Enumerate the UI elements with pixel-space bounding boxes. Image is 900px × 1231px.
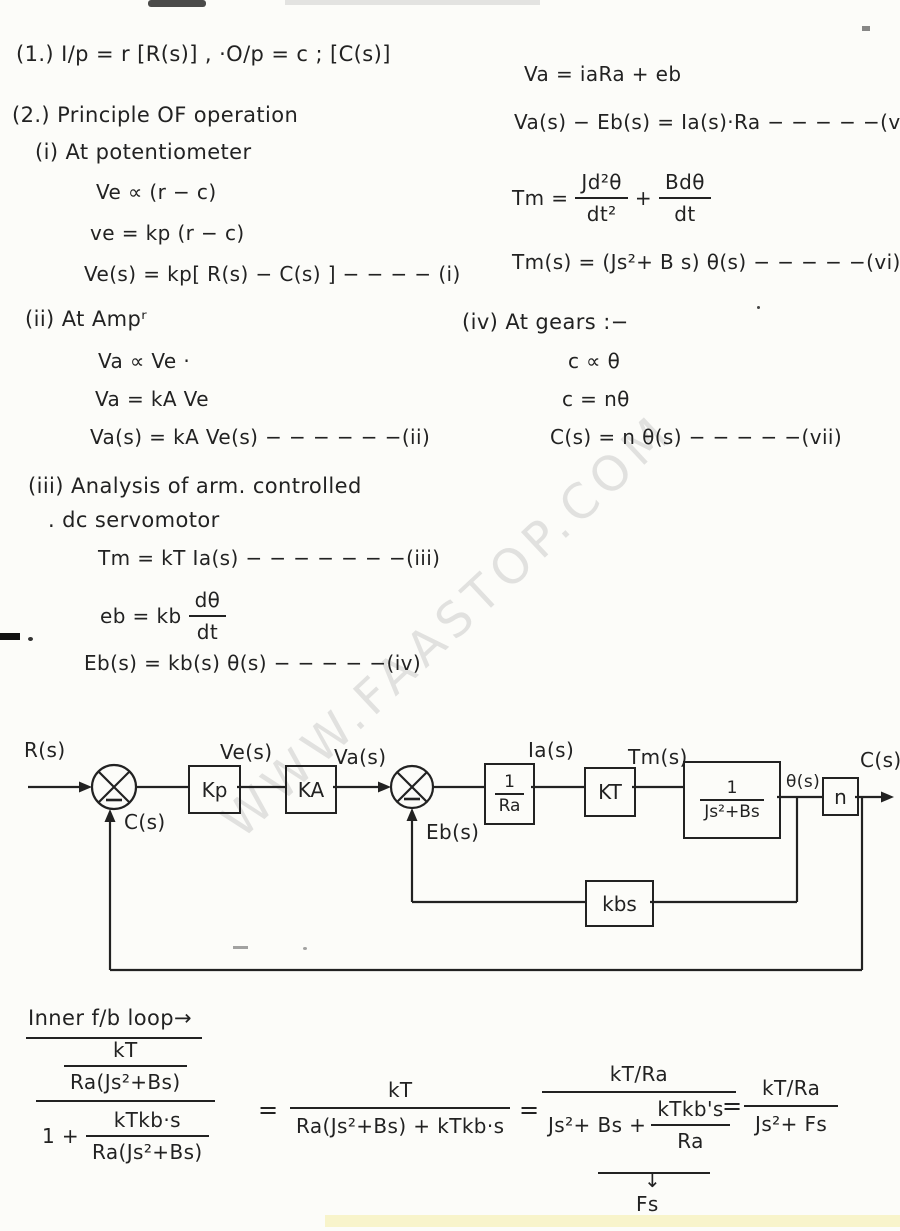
f2-den: Ra(Js²+Bs) + kTkb·s: [290, 1109, 510, 1138]
eq-torque-differential: Tm = Jd²θ dt² + Bdθ dt: [512, 170, 711, 226]
note-pot-title: (i) At potentiometer: [35, 140, 252, 165]
eq-ve-kp: ve = kp (r − c): [90, 221, 245, 245]
block-kt-label: KT: [598, 780, 622, 804]
block-kp: Kp: [188, 765, 241, 814]
note-amp-title: (ii) At Ampʳ: [25, 307, 147, 332]
f1-den-den: Ra(Js²+Bs): [86, 1137, 209, 1164]
eq-c-laplace: C(s) = n θ(s) − − − − −(vii): [550, 425, 842, 449]
f1-num-num: kT: [64, 1038, 187, 1067]
eq-torque-lhs: Tm =: [512, 186, 568, 210]
block-kbs: kbs: [585, 880, 654, 927]
eq-armature-laplace: Va(s) − Eb(s) = Ia(s)·Ra − − − − −(v): [514, 110, 900, 134]
eq-eb-lhs: eb = kb: [100, 604, 182, 628]
eq-eb-laplace: Eb(s) = kb(s) θ(s) − − − − −(iv): [84, 651, 421, 675]
block-ra-fraction: 1 Ra: [495, 772, 525, 816]
label-error-ves: Ve(s): [220, 740, 272, 764]
f1-den-prefix: 1 +: [42, 1124, 79, 1148]
arrow-into-junction2: [378, 782, 391, 793]
block-plant-num: 1: [700, 778, 763, 801]
scan-smudge-top: [148, 0, 206, 7]
f3-num: kT/Ra: [542, 1062, 736, 1093]
torque-frac1-num: Jd²θ: [575, 170, 627, 199]
equals-sign-1: =: [258, 1096, 279, 1125]
f1-den-num: kTkb·s: [86, 1108, 209, 1137]
arrow-feedback-junction1: [105, 809, 116, 822]
label-theta-s: θ(s): [786, 772, 820, 792]
block-plant-fraction: 1 Js²+Bs: [700, 778, 763, 822]
f1-denominator-fraction: kTkb·s Ra(Js²+Bs): [86, 1108, 209, 1164]
note-io-definition: (1.) I/p = r [R(s)] , ·O/p = c ; [C(s)]: [16, 42, 391, 67]
block-ra-num: 1: [495, 772, 525, 795]
note-principle-title: (2.) Principle OF operation: [12, 103, 298, 128]
arrow-output: [881, 792, 894, 803]
arrow-into-junction1: [79, 782, 92, 793]
label-input-rs: R(s): [24, 738, 66, 762]
block-kbs-label: kbs: [602, 892, 637, 916]
scan-yellow-band: [325, 1215, 900, 1227]
block-plant: 1 Js²+Bs: [683, 761, 781, 839]
f3-brace-label: Fs: [636, 1192, 659, 1216]
label-feedback-cs: C(s): [124, 810, 166, 834]
eq-va-laplace: Va(s) = kA Ve(s) − − − − − −(ii): [90, 425, 430, 449]
derivation-fraction-3: kT/Ra Js²+ Bs + kTkb's Ra: [542, 1062, 736, 1153]
arrow-feedback-junction2: [407, 808, 418, 821]
block-kp-label: Kp: [202, 778, 228, 802]
eq-ve-proportional: Ve ∝ (r − c): [96, 180, 217, 204]
equals-sign-2: =: [519, 1096, 540, 1125]
block-gear-ratio: n: [822, 777, 859, 816]
f3-den-fraction: kTkb's Ra: [651, 1097, 729, 1153]
block-ra-den: Ra: [495, 795, 525, 816]
torque-frac1-den: dt²: [575, 199, 627, 226]
f3-den-num: kTkb's: [651, 1097, 729, 1126]
f4-den: Js²+ Fs: [744, 1107, 838, 1136]
derivation-fraction-1: kT Ra(Js²+Bs) 1 + kTkb·s Ra(Js²+Bs): [36, 1038, 215, 1164]
block-1-over-ra: 1 Ra: [484, 763, 535, 825]
label-back-emf-ebs: Eb(s): [426, 820, 479, 844]
torque-frac2-den: dt: [659, 199, 711, 226]
f3-underbrace-arrow: ↓: [644, 1168, 661, 1192]
label-torque-tms: Tm(s): [628, 745, 688, 769]
eq-va-proportional: Va ∝ Ve ·: [98, 349, 190, 373]
eq-eb-backemf: eb = kb dθ dt: [100, 588, 226, 644]
note-servo-title-1: (iii) Analysis of arm. controlled: [28, 474, 362, 499]
block-ka: KA: [285, 765, 337, 814]
label-amp-out-vas: Va(s): [334, 745, 386, 769]
eq-ve-laplace: Ve(s) = kp[ R(s) − C(s) ] − − − − (i): [84, 262, 461, 286]
scan-speck-3: [757, 306, 760, 309]
torque-frac-2: Bdθ dt: [659, 170, 711, 226]
derivation-fraction-4: kT/Ra Js²+ Fs: [744, 1076, 838, 1136]
notes-page: WWW.FAASTOP.COM (1.) I/p = r [R(s)] , ·O…: [0, 0, 900, 1231]
eq-torque-laplace: Tm(s) = (Js²+ B s) θ(s) − − − − −(vi): [512, 250, 900, 274]
equals-sign-3: =: [722, 1092, 743, 1121]
note-servo-title-2: . dc servomotor: [48, 508, 220, 533]
scan-smudge-top2: [285, 0, 540, 5]
block-kt: KT: [584, 767, 636, 817]
f2-num: kT: [290, 1078, 510, 1109]
f1-num-den: Ra(Js²+Bs): [64, 1067, 187, 1094]
block-ka-label: KA: [298, 778, 324, 802]
scan-speck-topright: [862, 26, 870, 31]
block-plant-den: Js²+Bs: [700, 801, 763, 822]
eq-armature-kvl: Va = iaRa + eb: [524, 62, 681, 86]
margin-dot: [28, 637, 33, 641]
block-gear-label: n: [834, 785, 847, 809]
torque-plus-sign: +: [635, 186, 652, 210]
derivation-title: Inner f/b loop→: [26, 1006, 202, 1039]
derivation-fraction-2: kT Ra(Js²+Bs) + kTkb·s: [290, 1078, 510, 1138]
eq-tm-kt: Tm = kT Ia(s) − − − − − − −(iii): [98, 546, 440, 570]
f3-den-den: Ra: [651, 1126, 729, 1153]
label-current-ias: Ia(s): [528, 738, 574, 762]
eq-eb-fraction: dθ dt: [189, 588, 227, 644]
eq-eb-den: dt: [189, 617, 227, 644]
label-output-cs: C(s): [860, 748, 900, 772]
note-gears-title: (iv) At gears :−: [462, 310, 629, 335]
f3-den-prefix: Js²+ Bs +: [548, 1113, 646, 1137]
eq-eb-num: dθ: [189, 588, 227, 617]
f1-numerator-fraction: kT Ra(Js²+Bs): [64, 1038, 187, 1094]
f4-num: kT/Ra: [744, 1076, 838, 1107]
torque-frac2-num: Bdθ: [659, 170, 711, 199]
eq-c-n-theta: c = nθ: [562, 387, 630, 411]
margin-dash: [0, 633, 20, 640]
eq-va-ka: Va = kA Ve: [95, 387, 209, 411]
torque-frac-1: Jd²θ dt²: [575, 170, 627, 226]
eq-c-proportional: c ∝ θ: [568, 349, 620, 373]
